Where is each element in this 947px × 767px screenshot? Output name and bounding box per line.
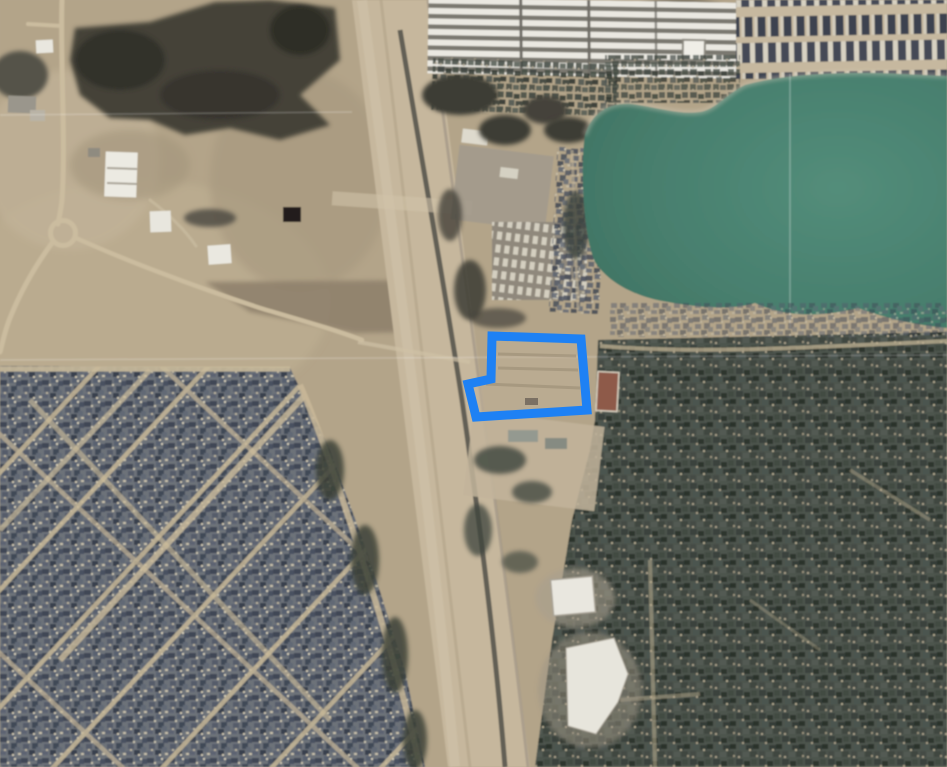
red-roof-building bbox=[596, 372, 619, 412]
building bbox=[36, 40, 54, 54]
building bbox=[88, 148, 100, 157]
lakeshore-south-houses bbox=[610, 303, 947, 337]
trees-strip bbox=[605, 55, 740, 103]
houses-ne bbox=[736, 0, 947, 79]
building bbox=[104, 151, 138, 197]
lake bbox=[583, 73, 947, 329]
building bbox=[207, 244, 231, 265]
building bbox=[551, 576, 596, 616]
pond bbox=[283, 207, 301, 222]
building bbox=[30, 110, 45, 121]
aerial-imagery bbox=[0, 0, 947, 767]
parcel-structure bbox=[525, 398, 538, 405]
map-viewport[interactable] bbox=[0, 0, 947, 767]
lake-water bbox=[583, 73, 947, 328]
building bbox=[150, 211, 172, 233]
